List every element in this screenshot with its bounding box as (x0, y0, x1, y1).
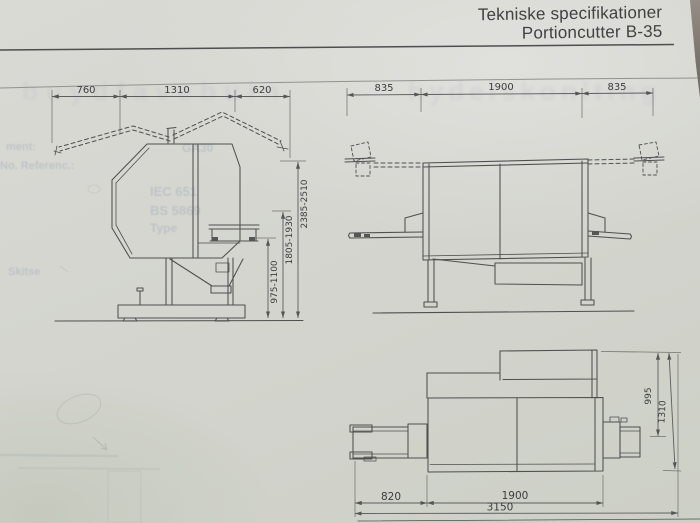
pencil-marks (0, 185, 160, 523)
technical-drawing: 760 1310 620 (0, 0, 700, 523)
dim-label-1805-1930: 1805-1930 (285, 215, 295, 264)
dim-label-975-1100: 975-1100 (270, 260, 280, 304)
page-rules (0, 45, 698, 89)
dim-label-995: 995 (644, 387, 654, 404)
dim-label-760: 760 (76, 85, 95, 96)
dim-label-835-left: 835 (374, 83, 393, 94)
front-view (345, 142, 664, 313)
dim-label-1900: 1900 (488, 82, 513, 93)
plan-view-dimensions: 820 1900 3150 995 1310 (355, 352, 681, 518)
dim-label-1310: 1310 (164, 85, 189, 96)
dim-label-620: 620 (252, 85, 271, 96)
photographed-spec-sheet: buydfavebuln hydelskonlting ment: No. Re… (0, 0, 700, 523)
dim-label-820: 820 (381, 491, 401, 503)
side-view-top-dimensions: 760 1310 620 (52, 85, 290, 158)
dim-label-3150: 3150 (487, 502, 514, 514)
side-view (54, 112, 303, 321)
side-view-height-dimensions: 975-1100 1805-1930 2385-2510 (255, 161, 310, 318)
dim-label-835-right: 835 (607, 82, 626, 93)
front-view-top-dimensions: 835 1900 835 (347, 82, 653, 118)
dim-label-2385-2510: 2385-2510 (300, 179, 310, 228)
dim-label-1310: 1310 (657, 400, 668, 424)
dim-label-1900-plan: 1900 (502, 490, 529, 502)
